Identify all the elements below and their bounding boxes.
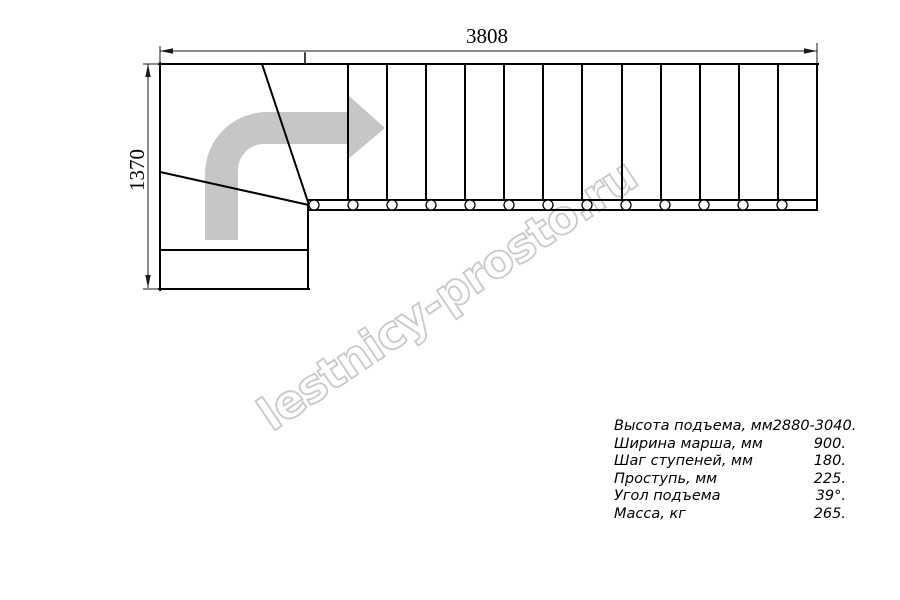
baluster-circle (699, 200, 709, 210)
baluster-circle (348, 200, 358, 210)
spec-value: 39°. (816, 488, 846, 506)
spec-label: Масса, кг (614, 506, 686, 524)
baluster-circles (309, 200, 787, 210)
baluster-circle (777, 200, 787, 210)
spec-row-height: Высота подъема, мм 2880-3040. (614, 418, 846, 436)
spec-value: 180. (814, 453, 846, 471)
spec-label: Проступь, мм (614, 471, 717, 489)
baluster-circle (621, 200, 631, 210)
baluster-circle (426, 200, 436, 210)
staircase-drawing-page: lestnicy-prosto.ru (0, 0, 900, 600)
tread-lines (348, 64, 778, 200)
spec-value: 900. (814, 436, 846, 454)
spec-row-angle: Угол подъема 39°. (614, 488, 846, 506)
baluster-circle (543, 200, 553, 210)
spec-label: Ширина марша, мм (614, 436, 763, 454)
arrowhead-left (160, 48, 173, 53)
baluster-circle (660, 200, 670, 210)
arrowhead-bottom (145, 275, 150, 288)
baluster-circle (504, 200, 514, 210)
baluster-circle (309, 200, 319, 210)
dim-height-label: 1370 (125, 149, 149, 191)
spec-row-flight-width: Ширина марша, мм 900. (614, 436, 846, 454)
arrowhead-top (145, 64, 150, 77)
baluster-circle (738, 200, 748, 210)
baluster-circle (465, 200, 475, 210)
spec-value: 225. (814, 471, 846, 489)
spec-row-step-rise: Шаг ступеней, мм 180. (614, 453, 846, 471)
spec-label: Высота подъема, мм (614, 418, 773, 436)
baluster-circle (582, 200, 592, 210)
spec-row-mass: Масса, кг 265. (614, 506, 846, 524)
spec-label: Угол подъема (614, 488, 721, 506)
dim-width-label: 3808 (466, 24, 508, 48)
spec-table: Высота подъема, мм 2880-3040. Ширина мар… (614, 418, 846, 524)
spec-label: Шаг ступеней, мм (614, 453, 753, 471)
spec-row-tread: Проступь, мм 225. (614, 471, 846, 489)
spec-value: 2880-3040. (773, 418, 857, 436)
watermark-text: lestnicy-prosto.ru (248, 148, 647, 441)
direction-arrow (205, 94, 385, 240)
baluster-circle (387, 200, 397, 210)
arrowhead-right (804, 48, 817, 53)
spec-value: 265. (814, 506, 846, 524)
